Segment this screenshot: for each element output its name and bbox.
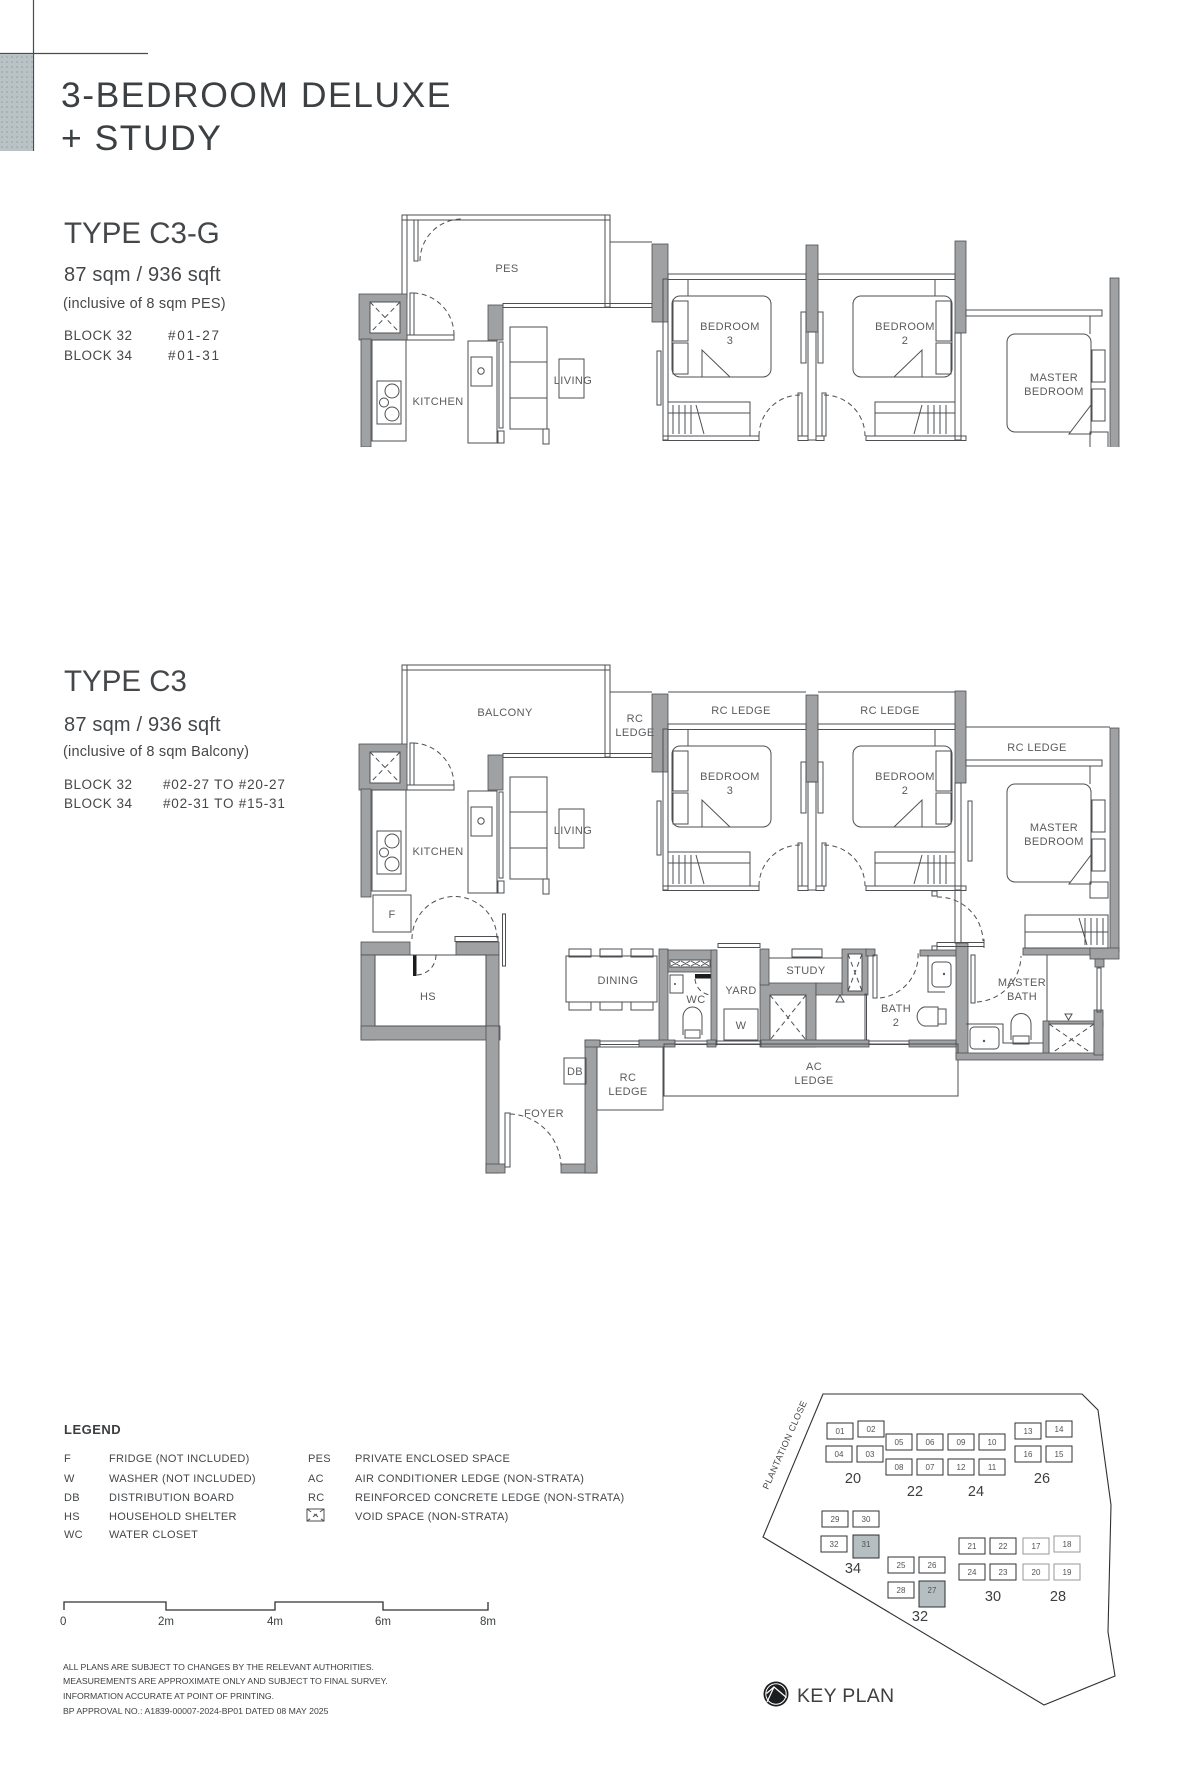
svg-text:24: 24 <box>968 1568 977 1577</box>
svg-text:F: F <box>388 909 395 921</box>
svg-text:BATH: BATH <box>1007 991 1037 1003</box>
svg-text:30: 30 <box>862 1515 871 1524</box>
svg-text:BATH: BATH <box>881 1003 911 1015</box>
svg-text:LEDGE: LEDGE <box>608 1086 647 1098</box>
svg-text:WC: WC <box>686 994 705 1006</box>
svg-text:PES: PES <box>495 263 518 275</box>
svg-text:AC: AC <box>806 1061 822 1073</box>
svg-text:27: 27 <box>928 1586 937 1595</box>
svg-text:06: 06 <box>926 1438 935 1447</box>
svg-text:HS: HS <box>420 991 436 1003</box>
svg-text:11: 11 <box>988 1463 997 1472</box>
svg-text:10: 10 <box>988 1438 997 1447</box>
svg-text:0: 0 <box>60 1616 66 1628</box>
svg-text:4m: 4m <box>267 1616 283 1628</box>
svg-text:6m: 6m <box>375 1616 391 1628</box>
svg-text:#02-31 TO #15-31: #02-31 TO #15-31 <box>163 796 286 811</box>
svg-text:LEDGE: LEDGE <box>615 727 654 739</box>
svg-text:(inclusive of 8 sqm Balcony): (inclusive of 8 sqm Balcony) <box>63 744 249 760</box>
svg-text:PES: PES <box>308 1453 331 1465</box>
svg-text:02: 02 <box>867 1425 876 1434</box>
svg-text:DB: DB <box>64 1492 80 1504</box>
svg-text:BLOCK 34: BLOCK 34 <box>64 796 133 811</box>
svg-text:LEDGE: LEDGE <box>794 1075 833 1087</box>
svg-text:24: 24 <box>968 1484 984 1500</box>
svg-text:RC: RC <box>620 1072 637 1084</box>
svg-text:F: F <box>64 1453 71 1465</box>
svg-text:#01-31: #01-31 <box>168 348 221 363</box>
svg-text:VOID SPACE (NON-STRATA): VOID SPACE (NON-STRATA) <box>355 1511 509 1523</box>
svg-text:2m: 2m <box>158 1616 174 1628</box>
svg-text:W: W <box>736 1020 747 1032</box>
svg-text:87 sqm / 936 sqft: 87 sqm / 936 sqft <box>64 714 221 736</box>
svg-text:12: 12 <box>957 1463 966 1472</box>
svg-text:HS: HS <box>64 1511 80 1523</box>
svg-text:21: 21 <box>968 1542 977 1551</box>
svg-text:#02-27 TO #20-27: #02-27 TO #20-27 <box>163 777 286 792</box>
svg-text:08: 08 <box>895 1463 904 1472</box>
svg-text:2: 2 <box>893 1017 900 1029</box>
svg-text:03: 03 <box>866 1450 875 1459</box>
svg-text:HOUSEHOLD SHELTER: HOUSEHOLD SHELTER <box>109 1511 237 1523</box>
svg-text:16: 16 <box>1024 1450 1033 1459</box>
svg-text:TYPE C3-G: TYPE C3-G <box>64 217 220 250</box>
svg-text:3-BEDROOM DELUXE: 3-BEDROOM DELUXE <box>61 75 452 115</box>
svg-text:09: 09 <box>957 1438 966 1447</box>
svg-text:87 sqm / 936 sqft: 87 sqm / 936 sqft <box>64 264 221 286</box>
svg-text:26: 26 <box>1034 1471 1050 1487</box>
svg-text:FRIDGE (NOT INCLUDED): FRIDGE (NOT INCLUDED) <box>109 1453 250 1465</box>
svg-text:BLOCK 34: BLOCK 34 <box>64 348 133 363</box>
svg-text:YARD: YARD <box>725 985 756 997</box>
svg-text:BLOCK 32: BLOCK 32 <box>64 777 133 792</box>
svg-text:18: 18 <box>1063 1540 1072 1549</box>
svg-text:WC: WC <box>64 1529 83 1541</box>
svg-text:MASTER: MASTER <box>998 977 1046 989</box>
svg-text:BP APPROVAL NO.: A1839-00007-2: BP APPROVAL NO.: A1839-00007-2024-BP01 D… <box>63 1706 329 1716</box>
svg-text:INFORMATION ACCURATE AT POINT: INFORMATION ACCURATE AT POINT OF PRINTIN… <box>63 1691 274 1701</box>
svg-text:REINFORCED CONCRETE LEDGE (NON: REINFORCED CONCRETE LEDGE (NON-STRATA) <box>355 1492 625 1504</box>
svg-text:04: 04 <box>835 1450 844 1459</box>
svg-text:RC: RC <box>627 713 644 725</box>
svg-text:22: 22 <box>999 1542 1008 1551</box>
svg-text:31: 31 <box>862 1540 871 1549</box>
svg-text:26: 26 <box>928 1561 937 1570</box>
svg-text:15: 15 <box>1055 1450 1064 1459</box>
svg-text:TYPE C3: TYPE C3 <box>64 665 187 698</box>
svg-text:20: 20 <box>1032 1568 1041 1577</box>
svg-text:32: 32 <box>912 1609 928 1625</box>
svg-text:MEASUREMENTS ARE APPROXIMATE O: MEASUREMENTS ARE APPROXIMATE ONLY AND SU… <box>63 1676 388 1686</box>
svg-text:14: 14 <box>1055 1425 1064 1434</box>
svg-text:07: 07 <box>926 1463 935 1472</box>
svg-text:ALL PLANS ARE SUBJECT TO CHANG: ALL PLANS ARE SUBJECT TO CHANGES BY THE … <box>63 1662 374 1672</box>
svg-text:+ STUDY: + STUDY <box>61 118 222 158</box>
svg-text:29: 29 <box>831 1515 840 1524</box>
svg-text:DINING: DINING <box>598 975 639 987</box>
svg-text:05: 05 <box>895 1438 904 1447</box>
svg-text:30: 30 <box>985 1589 1001 1605</box>
svg-text:01: 01 <box>836 1427 845 1436</box>
svg-text:28: 28 <box>1050 1589 1066 1605</box>
svg-text:#01-27: #01-27 <box>168 328 221 343</box>
svg-text:17: 17 <box>1032 1542 1041 1551</box>
svg-text:25: 25 <box>897 1561 906 1570</box>
svg-text:32: 32 <box>830 1540 839 1549</box>
svg-text:RC LEDGE: RC LEDGE <box>1007 742 1066 754</box>
svg-text:STUDY: STUDY <box>786 965 826 977</box>
svg-text:13: 13 <box>1024 1427 1033 1436</box>
svg-text:DB: DB <box>567 1066 583 1078</box>
svg-text:PRIVATE ENCLOSED SPACE: PRIVATE ENCLOSED SPACE <box>355 1453 510 1465</box>
svg-text:RC LEDGE: RC LEDGE <box>711 705 770 717</box>
svg-text:DISTRIBUTION BOARD: DISTRIBUTION BOARD <box>109 1492 234 1504</box>
svg-text:28: 28 <box>897 1586 906 1595</box>
svg-text:19: 19 <box>1063 1568 1072 1577</box>
svg-text:(inclusive of 8 sqm PES): (inclusive of 8 sqm PES) <box>63 296 226 312</box>
svg-text:34: 34 <box>845 1561 861 1577</box>
svg-text:8m: 8m <box>480 1616 496 1628</box>
svg-text:RC: RC <box>308 1492 325 1504</box>
svg-text:WATER CLOSET: WATER CLOSET <box>109 1529 198 1541</box>
svg-text:AIR CONDITIONER LEDGE (NON-STR: AIR CONDITIONER LEDGE (NON-STRATA) <box>355 1473 584 1485</box>
svg-text:LEGEND: LEGEND <box>64 1422 121 1437</box>
svg-text:23: 23 <box>999 1568 1008 1577</box>
svg-text:KEY PLAN: KEY PLAN <box>797 1685 894 1707</box>
svg-text:BLOCK 32: BLOCK 32 <box>64 328 133 343</box>
svg-text:FOYER: FOYER <box>524 1108 564 1120</box>
svg-text:RC LEDGE: RC LEDGE <box>860 705 919 717</box>
svg-text:20: 20 <box>845 1471 861 1487</box>
svg-text:22: 22 <box>907 1484 923 1500</box>
svg-text:W: W <box>64 1473 75 1485</box>
svg-text:WASHER (NOT INCLUDED): WASHER (NOT INCLUDED) <box>109 1473 256 1485</box>
svg-text:BALCONY: BALCONY <box>477 707 533 719</box>
svg-text:AC: AC <box>308 1473 324 1485</box>
